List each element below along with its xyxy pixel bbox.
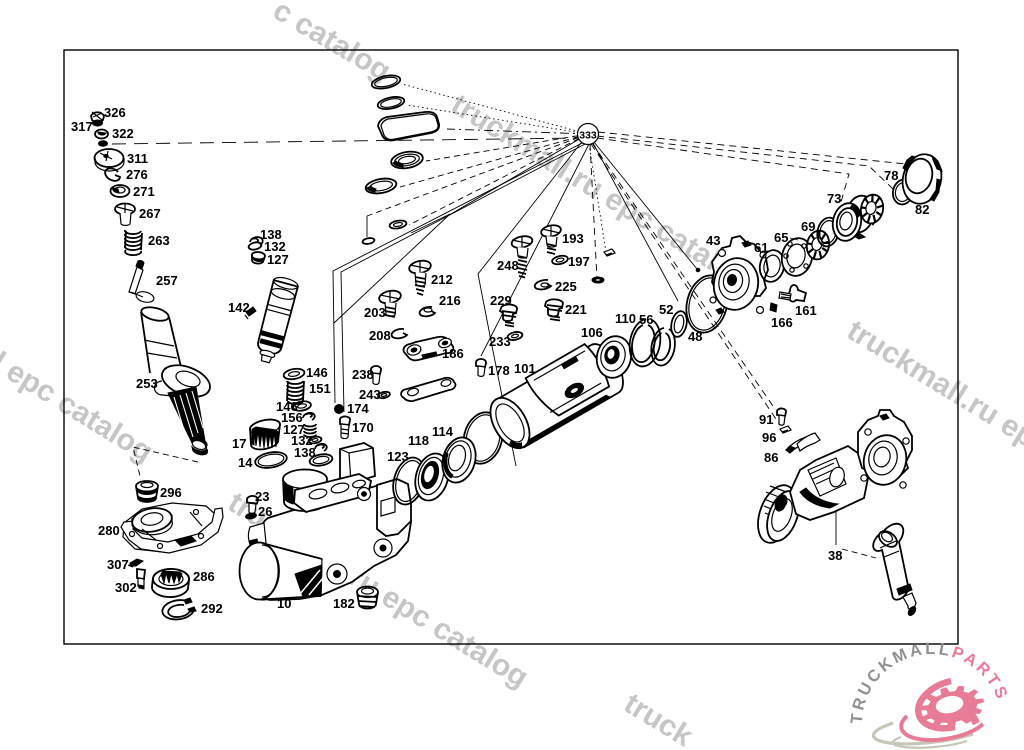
svg-text:197: 197 bbox=[568, 254, 590, 269]
svg-text:174: 174 bbox=[347, 401, 369, 416]
svg-text:65: 65 bbox=[774, 230, 788, 245]
svg-text:127: 127 bbox=[267, 252, 289, 267]
svg-text:292: 292 bbox=[201, 601, 223, 616]
svg-text:322: 322 bbox=[112, 126, 134, 141]
svg-text:101: 101 bbox=[514, 361, 536, 376]
svg-text:56: 56 bbox=[639, 312, 653, 327]
svg-text:61: 61 bbox=[754, 240, 768, 255]
svg-text:82: 82 bbox=[915, 202, 929, 217]
svg-text:146: 146 bbox=[306, 365, 328, 380]
svg-text:110: 110 bbox=[615, 311, 636, 326]
svg-text:233: 233 bbox=[489, 334, 511, 349]
svg-text:48: 48 bbox=[688, 329, 702, 344]
svg-text:73: 73 bbox=[827, 191, 841, 206]
svg-text:38: 38 bbox=[828, 548, 842, 563]
svg-text:17: 17 bbox=[232, 436, 246, 451]
svg-text:10: 10 bbox=[277, 596, 291, 611]
svg-text:216: 216 bbox=[439, 293, 461, 308]
svg-text:208: 208 bbox=[369, 328, 391, 343]
svg-text:267: 267 bbox=[139, 206, 161, 221]
svg-text:193: 193 bbox=[562, 231, 584, 246]
svg-text:296: 296 bbox=[160, 485, 182, 500]
svg-text:186: 186 bbox=[442, 346, 464, 361]
svg-text:257: 257 bbox=[156, 273, 178, 288]
svg-text:276: 276 bbox=[126, 167, 148, 182]
svg-text:14: 14 bbox=[238, 455, 253, 470]
svg-text:333: 333 bbox=[579, 130, 597, 142]
svg-text:170: 170 bbox=[352, 420, 374, 435]
svg-text:118: 118 bbox=[408, 433, 429, 448]
svg-text:166: 166 bbox=[771, 315, 793, 330]
svg-text:286: 286 bbox=[193, 569, 215, 584]
svg-text:123: 123 bbox=[387, 449, 409, 464]
svg-text:307: 307 bbox=[107, 557, 129, 572]
svg-text:248: 248 bbox=[497, 258, 519, 273]
svg-text:43: 43 bbox=[706, 233, 720, 248]
svg-text:23: 23 bbox=[255, 489, 269, 504]
svg-text:263: 263 bbox=[148, 233, 170, 248]
svg-text:78: 78 bbox=[884, 168, 898, 183]
svg-text:203: 203 bbox=[364, 305, 386, 320]
svg-text:114: 114 bbox=[432, 424, 454, 439]
svg-text:151: 151 bbox=[309, 381, 331, 396]
svg-text:302: 302 bbox=[115, 580, 137, 595]
svg-text:229: 229 bbox=[490, 293, 512, 308]
svg-text:238: 238 bbox=[352, 367, 374, 382]
svg-text:26: 26 bbox=[258, 504, 272, 519]
svg-text:280: 280 bbox=[98, 523, 120, 538]
svg-text:178: 178 bbox=[488, 363, 510, 378]
svg-text:225: 225 bbox=[555, 279, 577, 294]
svg-text:326: 326 bbox=[104, 105, 126, 120]
svg-text:142: 142 bbox=[228, 300, 250, 315]
svg-text:96: 96 bbox=[762, 430, 776, 445]
svg-text:52: 52 bbox=[659, 302, 673, 317]
svg-text:106: 106 bbox=[581, 325, 603, 340]
svg-text:221: 221 bbox=[565, 302, 587, 317]
svg-text:253: 253 bbox=[136, 376, 158, 391]
svg-text:161: 161 bbox=[795, 303, 817, 318]
svg-text:182: 182 bbox=[333, 596, 355, 611]
svg-text:317: 317 bbox=[71, 119, 93, 134]
svg-text:91: 91 bbox=[759, 412, 773, 427]
svg-text:86: 86 bbox=[764, 450, 778, 465]
svg-text:271: 271 bbox=[133, 184, 155, 199]
svg-text:69: 69 bbox=[801, 219, 815, 234]
svg-text:243: 243 bbox=[359, 387, 381, 402]
svg-text:311: 311 bbox=[127, 151, 148, 166]
svg-text:212: 212 bbox=[431, 272, 453, 287]
